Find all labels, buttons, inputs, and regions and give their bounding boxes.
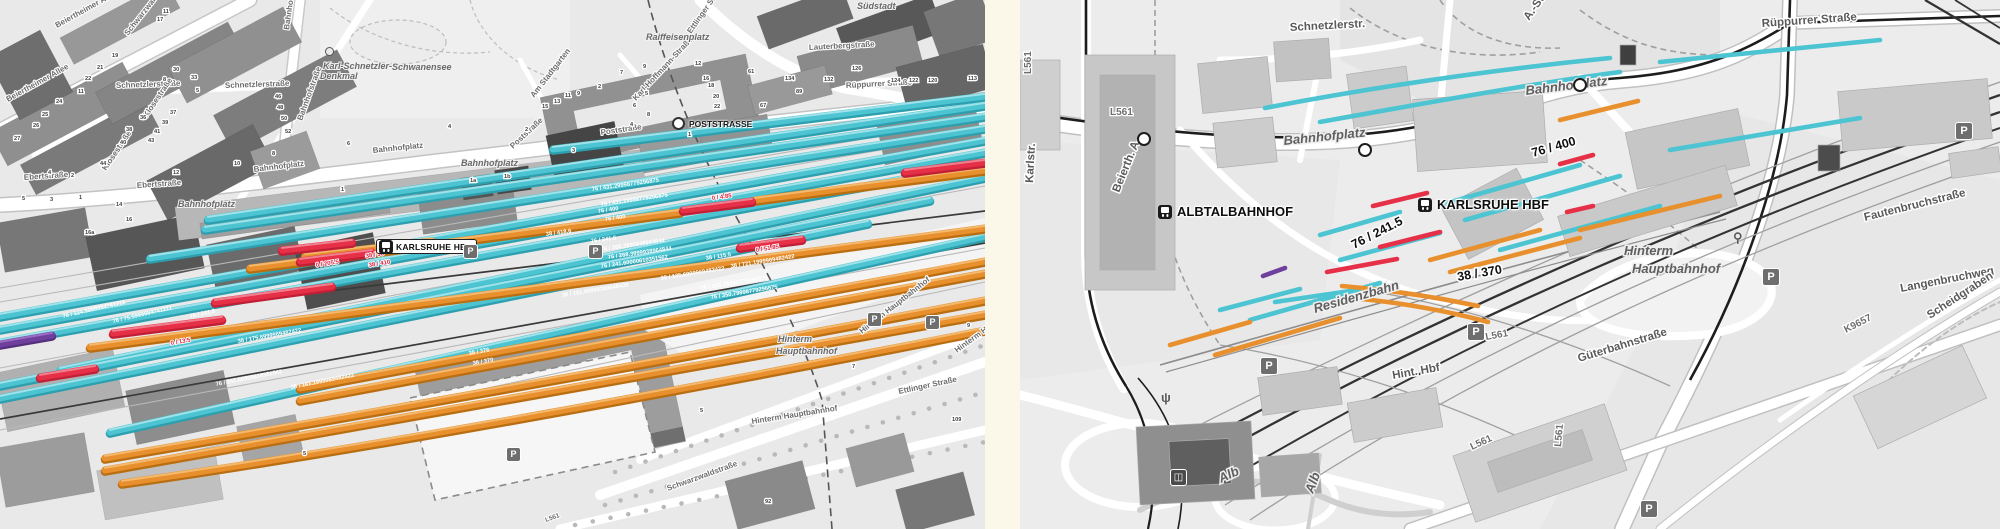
tram-stop-name: POSTSTRASSE — [689, 119, 752, 129]
train-station-icon — [379, 240, 393, 254]
parking-icon: P — [1260, 357, 1278, 375]
parking-icon: P — [463, 244, 478, 259]
house-number: 33 — [191, 75, 197, 81]
house-number: 41 — [154, 129, 160, 135]
house-number: 113 — [968, 76, 977, 82]
house-number: 5 — [645, 91, 648, 97]
house-number: 24 — [56, 99, 63, 105]
house-number: 52 — [285, 129, 291, 135]
station-name: KARLSRUHE HBF — [396, 242, 472, 252]
house-number: 6 — [633, 103, 636, 109]
house-number: 25 — [42, 112, 48, 118]
house-number: 2 — [71, 173, 74, 179]
house-number: 7 — [852, 364, 855, 370]
screenshot-root: Beiertheimer AlleeBeiertheimer AlleeSchw… — [0, 0, 2000, 529]
parking-icon: P — [1955, 122, 1973, 140]
place-label: Schwanensee — [392, 62, 452, 72]
train-station-icon — [1158, 205, 1172, 219]
house-number: 92 — [765, 499, 771, 505]
station-name: KARLSRUHE HBF — [1437, 197, 1549, 212]
house-number: 40 — [120, 140, 126, 146]
house-number: 39 — [162, 120, 168, 126]
parking-icon: P — [506, 447, 521, 462]
house-number: 1 — [688, 132, 691, 138]
parking-icon: P — [925, 315, 940, 330]
house-number: 61 — [748, 69, 754, 75]
house-number: 12 — [173, 170, 179, 176]
house-number: 1b — [504, 174, 511, 180]
road-ref-label: L561 — [1023, 51, 1034, 74]
house-number: 1a — [470, 178, 477, 184]
tram-stop-icon — [1358, 143, 1372, 157]
house-number: 12 — [695, 61, 701, 67]
house-number: 8 — [272, 151, 275, 157]
tram-stop-icon — [1573, 78, 1587, 92]
house-number: 16a — [85, 230, 95, 236]
house-number: 1 — [79, 195, 82, 201]
place-label: Bahnhofplatz — [178, 199, 235, 209]
house-number: 122 — [909, 78, 918, 84]
house-number: 3 — [50, 197, 53, 203]
house-number: 43 — [148, 138, 154, 144]
house-number: 9 — [643, 64, 646, 70]
parking-icon: P — [867, 312, 882, 327]
house-number: 4 — [448, 124, 452, 130]
house-number: 22 — [714, 104, 720, 110]
house-number: 2 — [525, 127, 528, 133]
place-label: Hauptbahnhof — [776, 346, 838, 356]
house-number: 5 — [700, 408, 703, 414]
station-label-karlsruhe-hbf[interactable]: KARLSRUHE HBF — [376, 239, 477, 254]
house-number: 21 — [97, 65, 103, 71]
house-number: 2 — [598, 84, 601, 90]
house-number: 38 — [126, 127, 132, 133]
house-number: 50 — [281, 116, 287, 122]
house-number: 109 — [952, 417, 961, 423]
house-number: 17 — [157, 17, 163, 23]
place-label: Denkmal — [320, 71, 358, 81]
house-number: 5 — [22, 196, 25, 202]
house-number: 8 — [163, 77, 166, 83]
parking-icon: P — [1762, 268, 1780, 286]
house-number: 9 — [967, 323, 970, 329]
house-number: 30 — [173, 67, 179, 73]
house-number: 11 — [565, 93, 571, 99]
parking-icon: P — [1640, 500, 1658, 518]
left-map-canvas: Beiertheimer AlleeBeiertheimer AlleeSchw… — [0, 0, 985, 529]
tram-stop-poststrasse[interactable]: POSTSTRASSE — [672, 117, 752, 130]
house-number: 67 — [760, 103, 766, 109]
place-label: Karl-Schnetzler- — [323, 61, 392, 71]
antenna-icon: ψ — [1161, 390, 1171, 405]
house-number: 134 — [785, 76, 795, 82]
house-number: 26 — [33, 123, 39, 129]
house-number: 20 — [713, 94, 719, 100]
station-label-karlsruhe-hbf[interactable]: KARLSRUHE HBF — [1418, 197, 1549, 212]
house-number: 22 — [85, 76, 91, 82]
house-number: 5 — [303, 451, 306, 457]
house-number: 10 — [234, 161, 240, 167]
parking-icon: P — [588, 244, 603, 259]
house-number: 18 — [708, 83, 714, 89]
house-number: 46 — [275, 94, 281, 100]
place-label: Südstadt — [857, 1, 897, 11]
house-number: 126 — [852, 66, 861, 72]
house-number: 120 — [928, 78, 937, 84]
parking-icon: P — [1467, 323, 1485, 341]
station-label-albtalbahnhof[interactable]: ALBTALBAHNHOF — [1158, 204, 1293, 219]
house-number: 14 — [116, 202, 123, 208]
house-number: 7 — [620, 70, 623, 76]
road-ref-label: L561 — [1553, 423, 1566, 447]
tram-stop-icon — [1137, 132, 1151, 146]
monument-icon — [325, 47, 334, 56]
house-number: 36 — [140, 115, 146, 121]
house-number: 44 — [100, 161, 107, 167]
house-number: 5 — [196, 88, 199, 94]
house-number: 3 — [572, 148, 575, 154]
place-label: Raiffeisenplatz — [646, 32, 710, 42]
street-label: Karlstr. — [1024, 143, 1038, 183]
train-station-icon — [1418, 198, 1432, 212]
house-number: 16 — [703, 76, 709, 82]
road-ref-label: L561 — [1110, 107, 1133, 118]
right-map-canvas: Schnetzlerstr.Rüppurrer StraßeKarlstr.Be… — [1020, 0, 2000, 529]
house-number: 19 — [112, 53, 118, 59]
place-label: Hauptbahnhof — [1632, 261, 1722, 276]
place-label: Bahnhofplatz — [461, 158, 518, 168]
purple-track-segment — [0, 335, 52, 344]
station-name: ALBTALBAHNHOF — [1177, 204, 1293, 219]
house-number: 48 — [277, 105, 283, 111]
house-number: 1 — [341, 187, 344, 193]
street-label: Bahnhofplatz — [372, 141, 423, 155]
house-number: 15 — [542, 104, 548, 110]
road-ref-label: L561 — [544, 512, 561, 524]
house-number: 37 — [170, 110, 176, 116]
house-number: 16 — [126, 217, 132, 223]
house-number: 9 — [577, 91, 580, 97]
house-number: 124 — [891, 78, 901, 84]
gate-icon: ⚲ — [1733, 230, 1743, 246]
map-2d-panel[interactable]: Schnetzlerstr.Rüppurrer StraßeKarlstr.Be… — [1020, 0, 2000, 529]
tram-stop-icon — [672, 117, 685, 130]
building-icon: ◫ — [1170, 469, 1187, 486]
house-number: 13 — [554, 99, 560, 105]
place-label: Hinterm — [778, 334, 812, 344]
place-label: Hinterm — [1624, 243, 1674, 258]
house-number: 6 — [347, 141, 350, 147]
house-number: 11 — [78, 89, 84, 95]
house-number: 8 — [647, 112, 650, 118]
map-3d-panel[interactable]: Beiertheimer AlleeBeiertheimer AlleeSchw… — [0, 0, 985, 529]
house-number: 89 — [796, 89, 802, 95]
house-number: 11 — [163, 9, 169, 15]
house-number: 132 — [824, 77, 833, 83]
house-number: 27 — [14, 136, 20, 142]
